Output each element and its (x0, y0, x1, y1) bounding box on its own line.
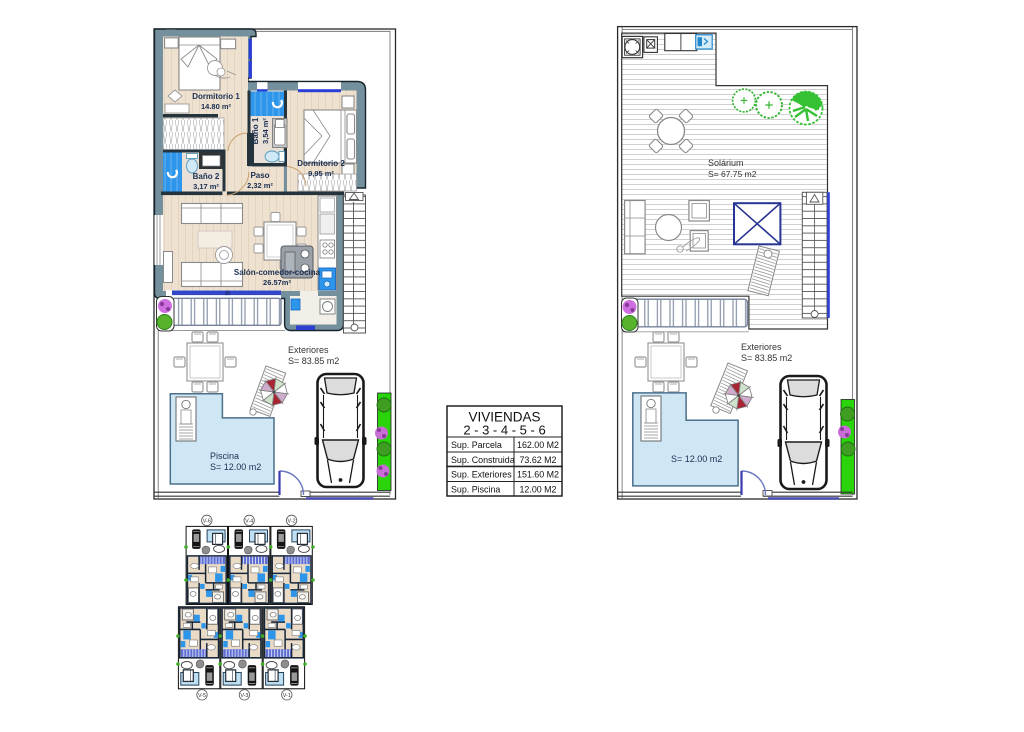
svg-text:Baño 2: Baño 2 (193, 172, 220, 181)
svg-text:V-1: V-1 (283, 693, 291, 699)
svg-text:2,32 m²: 2,32 m² (247, 181, 273, 190)
svg-text:Exteriores: Exteriores (288, 345, 329, 355)
svg-text:S= 67.75 m2: S= 67.75 m2 (708, 169, 757, 179)
svg-text:3,54 m²: 3,54 m² (261, 118, 270, 144)
svg-text:Baño 1: Baño 1 (251, 117, 260, 144)
svg-text:S= 12.00 m2: S= 12.00 m2 (671, 454, 722, 464)
svg-text:S= 83.85 m2: S= 83.85 m2 (288, 356, 339, 366)
svg-text:S= 12.00 m2: S= 12.00 m2 (210, 462, 261, 472)
svg-text:Sup. Exteriores: Sup. Exteriores (451, 470, 512, 480)
svg-text:S= 83.85 m2: S= 83.85 m2 (741, 353, 792, 363)
svg-text:12.00 M2: 12.00 M2 (519, 484, 556, 494)
svg-text:Exteriores: Exteriores (741, 342, 782, 352)
svg-text:Dormitorio 2: Dormitorio 2 (297, 159, 345, 168)
svg-text:Piscina: Piscina (210, 451, 239, 461)
svg-text:14.80 m²: 14.80 m² (201, 102, 232, 111)
svg-text:3,17 m²: 3,17 m² (193, 182, 219, 191)
svg-text:V-3: V-3 (240, 693, 248, 699)
svg-text:2 - 3 - 4 - 5 - 6: 2 - 3 - 4 - 5 - 6 (463, 423, 545, 438)
svg-text:26.57m²: 26.57m² (263, 278, 291, 287)
svg-text:Sup. Parcela: Sup. Parcela (451, 440, 502, 450)
svg-text:Solárium: Solárium (708, 158, 744, 168)
svg-text:V-4: V-4 (245, 518, 253, 524)
svg-text:9,95 m²: 9,95 m² (308, 169, 334, 178)
svg-text:Paso: Paso (250, 171, 269, 180)
svg-text:V-6: V-6 (203, 518, 211, 524)
svg-text:Salón-comedor-cocina: Salón-comedor-cocina (234, 268, 321, 277)
svg-text:Dormitorio 1: Dormitorio 1 (192, 92, 240, 101)
svg-text:Sup. Piscina: Sup. Piscina (451, 484, 500, 494)
svg-text:V-5: V-5 (198, 693, 206, 699)
svg-text:151.60 M2: 151.60 M2 (517, 470, 559, 480)
svg-text:V-2: V-2 (288, 518, 296, 524)
svg-text:73.62 M2: 73.62 M2 (519, 455, 556, 465)
svg-text:Sup. Construida: Sup. Construida (451, 455, 515, 465)
svg-text:162.00 M2: 162.00 M2 (517, 440, 559, 450)
